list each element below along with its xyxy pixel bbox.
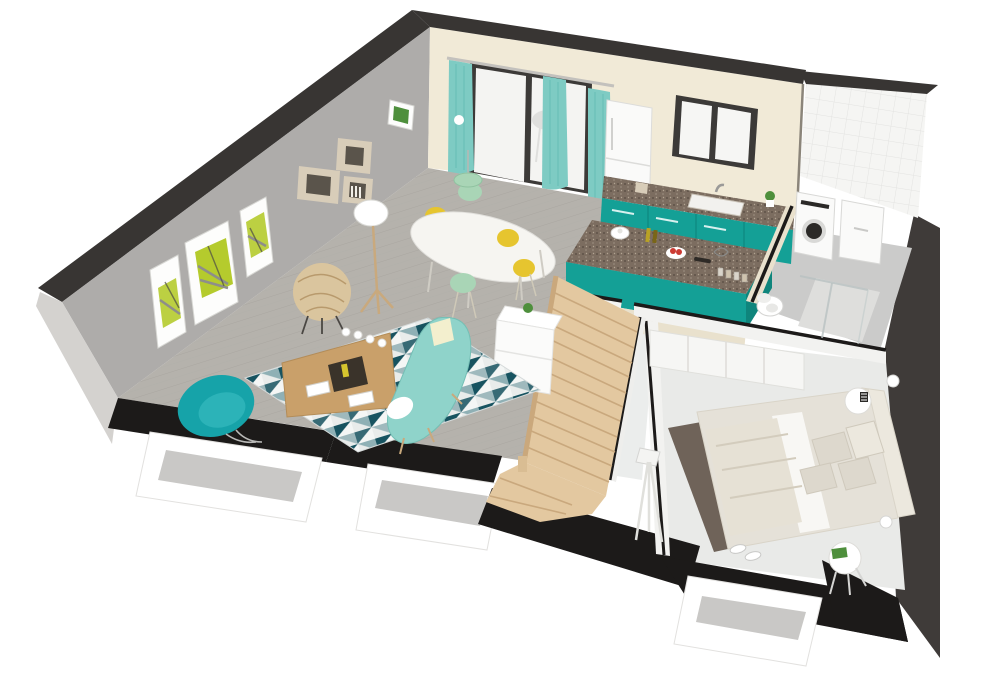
fruit-bowl [666,247,686,259]
rattan-chair-body [293,263,351,321]
cube-shelf-2-inner [306,174,331,196]
counter-plant-pot [766,200,774,207]
kitchen-window-pane-left [679,101,712,159]
toilet-seat [766,304,778,313]
newel-post [518,456,527,472]
magazine [831,547,847,559]
counter-plant [765,191,775,201]
floor-lamp-shade [354,200,388,226]
floorplan-svg [0,0,1000,698]
curtain-tieback [454,115,464,125]
toilet-tank [757,293,771,303]
yellow-chair-4 [513,259,535,277]
washing-machine [794,192,835,260]
floorplan-render [0,0,1000,698]
dryer [839,200,884,264]
mint-chair-bottom [450,273,476,293]
fruit-1 [670,248,676,254]
wall-sconce-bottom [880,516,892,528]
dryer-body [839,200,884,264]
cutting-board [635,182,648,194]
wall-sconce-top [887,375,899,387]
sideboard-plant [523,303,533,313]
fruit-2 [676,249,682,255]
yellow-chair-3 [497,229,519,247]
curtain-middle [542,76,568,190]
pendant-shade [454,173,482,187]
cube-shelf-1-inner [345,146,364,166]
pot-lid-knob [618,229,623,234]
door-pane-left [474,68,526,182]
kitchen-window-pane-right [715,107,751,164]
washer-door [806,223,822,239]
